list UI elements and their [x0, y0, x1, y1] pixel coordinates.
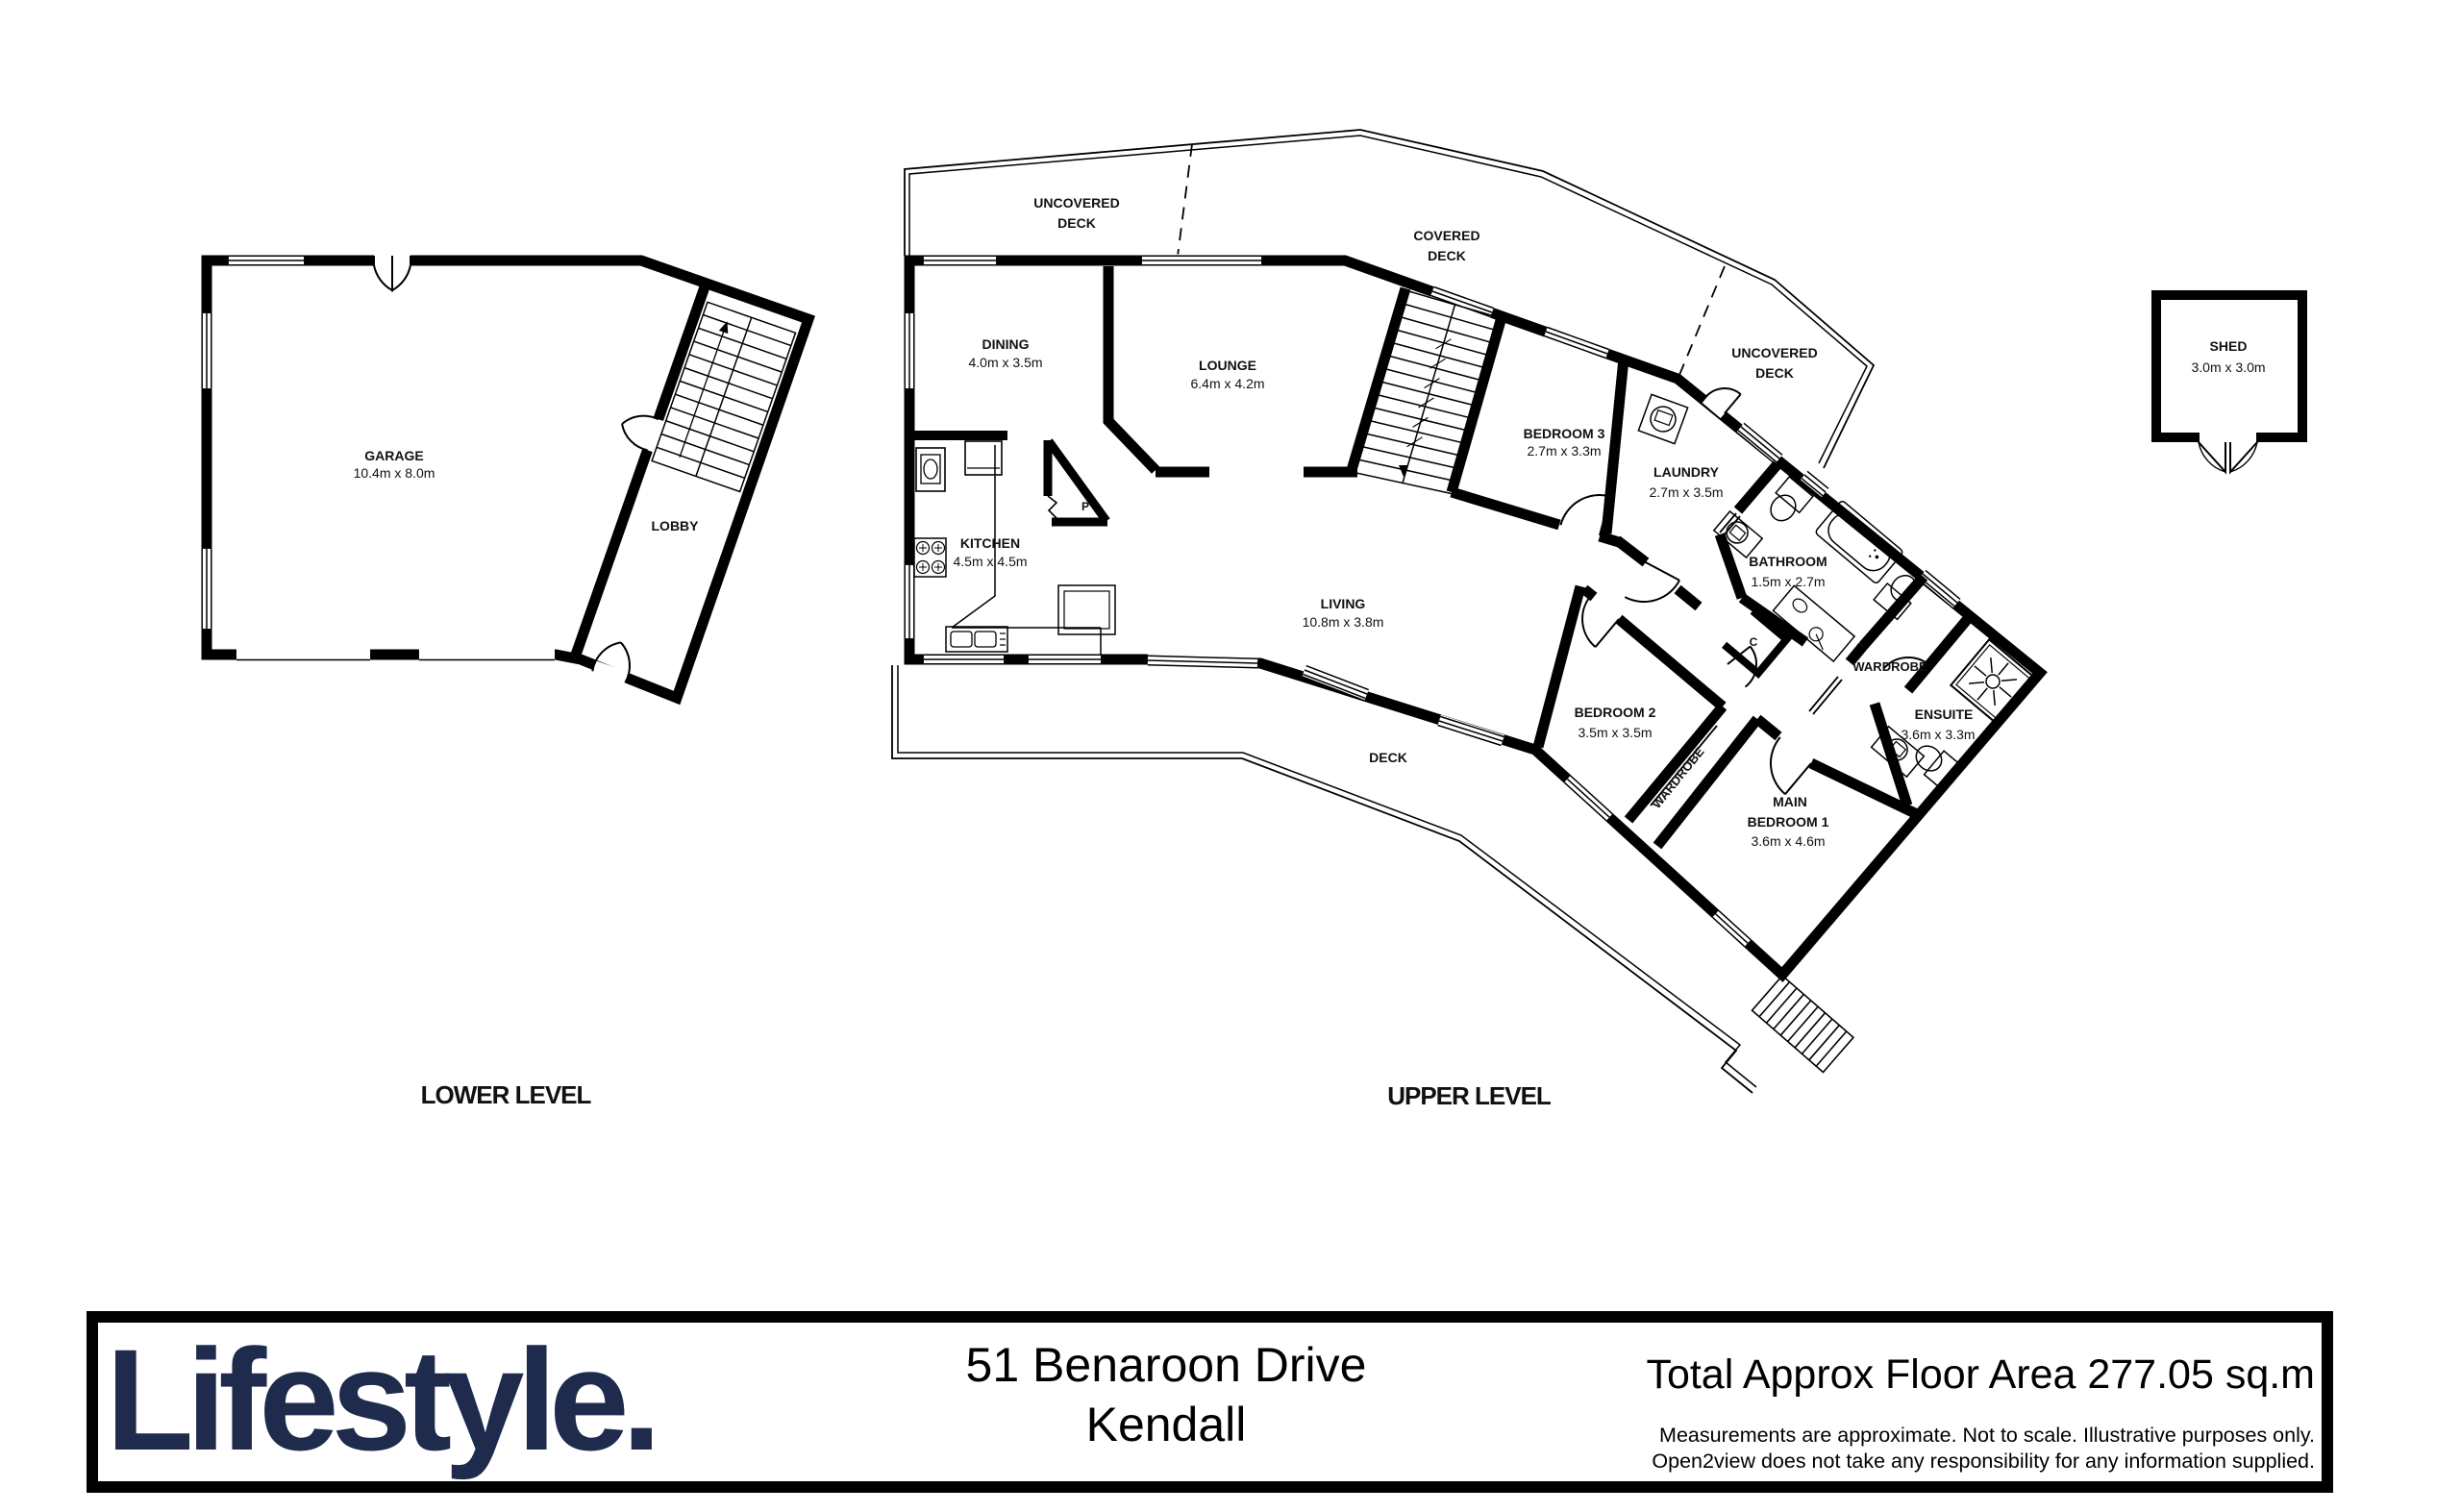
svg-text:DECK: DECK	[1057, 215, 1096, 231]
svg-text:Kendall: Kendall	[1086, 1398, 1247, 1451]
svg-text:BATHROOM: BATHROOM	[1749, 554, 1827, 569]
svg-text:3.6m x 4.6m: 3.6m x 4.6m	[1751, 833, 1825, 849]
svg-text:10.8m x 3.8m: 10.8m x 3.8m	[1303, 614, 1384, 630]
svg-text:MAIN: MAIN	[1773, 794, 1807, 809]
svg-text:UNCOVERED: UNCOVERED	[1731, 345, 1817, 360]
svg-text:3.6m x 3.3m: 3.6m x 3.3m	[1901, 727, 1975, 742]
svg-text:Lifestyle.: Lifestyle.	[106, 1319, 654, 1480]
svg-text:6.4m x 4.2m: 6.4m x 4.2m	[1190, 376, 1264, 391]
svg-text:LIVING: LIVING	[1321, 596, 1366, 611]
svg-text:WARDROBE: WARDROBE	[1852, 659, 1927, 674]
svg-text:GARAGE: GARAGE	[364, 448, 423, 463]
svg-text:LOBBY: LOBBY	[652, 518, 700, 533]
svg-text:3.0m x 3.0m: 3.0m x 3.0m	[2191, 359, 2265, 375]
svg-text:2.7m x 3.3m: 2.7m x 3.3m	[1527, 443, 1601, 459]
svg-text:DECK: DECK	[1428, 248, 1466, 263]
svg-text:3.5m x 3.5m: 3.5m x 3.5m	[1578, 725, 1652, 740]
svg-text:4.5m x 4.5m: 4.5m x 4.5m	[953, 554, 1027, 569]
svg-text:BEDROOM 3: BEDROOM 3	[1524, 426, 1605, 441]
svg-text:DINING: DINING	[982, 336, 1030, 352]
svg-text:51 Benaroon Drive: 51 Benaroon Drive	[966, 1338, 1367, 1392]
svg-text:4.0m x 3.5m: 4.0m x 3.5m	[968, 355, 1042, 370]
svg-text:COVERED: COVERED	[1413, 228, 1479, 243]
svg-text:Measurements are approximate.: Measurements are approximate. Not to sca…	[1659, 1424, 2315, 1447]
svg-text:LOWER LEVEL: LOWER LEVEL	[421, 1080, 592, 1109]
svg-text:ENSUITE: ENSUITE	[1915, 706, 1974, 722]
svg-text:BEDROOM 2: BEDROOM 2	[1575, 705, 1656, 720]
svg-text:UNCOVERED: UNCOVERED	[1033, 195, 1119, 211]
svg-text:LAUNDRY: LAUNDRY	[1653, 464, 1720, 480]
svg-text:SHED: SHED	[2210, 338, 2248, 354]
svg-text:P: P	[1081, 500, 1089, 513]
svg-text:C: C	[1750, 635, 1758, 649]
svg-text:10.4m x 8.0m: 10.4m x 8.0m	[354, 465, 435, 481]
svg-text:UPPER LEVEL: UPPER LEVEL	[1387, 1081, 1552, 1110]
svg-text:Open2view does not take any re: Open2view does not take any responsibili…	[1652, 1450, 2315, 1473]
svg-text:LOUNGE: LOUNGE	[1199, 358, 1256, 373]
svg-text:BEDROOM 1: BEDROOM 1	[1748, 814, 1829, 830]
svg-text:1.5m x 2.7m: 1.5m x 2.7m	[1751, 574, 1825, 589]
svg-text:DECK: DECK	[1755, 365, 1794, 381]
svg-text:DECK: DECK	[1369, 750, 1407, 765]
svg-text:2.7m x 3.5m: 2.7m x 3.5m	[1649, 484, 1723, 500]
svg-text:Total Approx Floor Area 277.05: Total Approx Floor Area 277.05 sq.m	[1646, 1351, 2315, 1398]
svg-text:KITCHEN: KITCHEN	[960, 535, 1020, 551]
